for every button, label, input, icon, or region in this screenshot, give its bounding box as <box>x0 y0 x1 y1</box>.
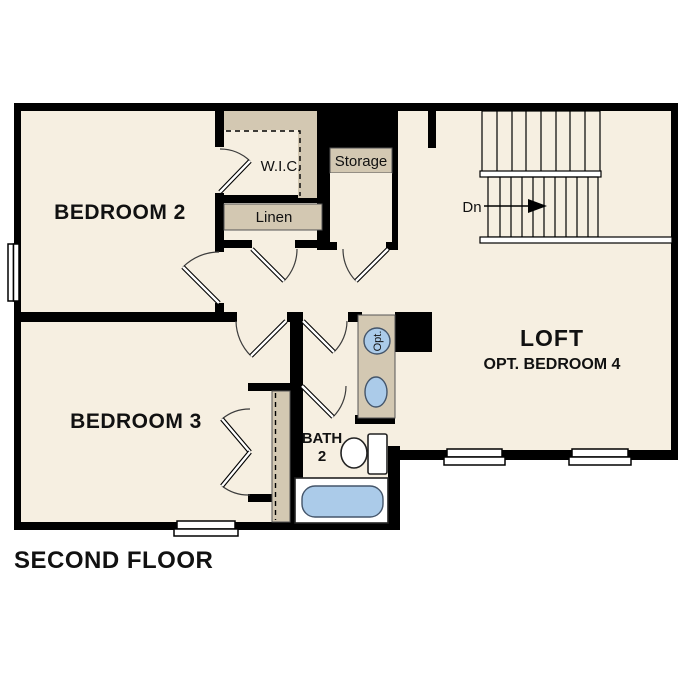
wall-loft-corner-block <box>395 312 432 352</box>
wall-hall-top-stub1 <box>218 240 252 248</box>
stairs-down-label: Dn <box>462 199 481 216</box>
storage-floor <box>330 173 392 242</box>
optional-sink-label: Opt. <box>372 331 384 352</box>
floor-loft-wing <box>398 103 678 460</box>
bathtub <box>302 486 383 517</box>
bedroom3-label: BEDROOM 3 <box>70 410 202 433</box>
loft-window1-inner <box>447 449 502 457</box>
floor-title: SECOND FLOOR <box>14 547 213 574</box>
stair-landing-rail <box>480 171 601 177</box>
stair-bottom-rail <box>480 237 672 243</box>
wall-bath-right <box>388 446 400 530</box>
bedroom2-label: BEDROOM 2 <box>54 201 186 224</box>
floorplan-page: BEDROOM 2 BEDROOM 3 LOFT OPT. BEDROOM 4 … <box>0 0 687 687</box>
loft-option-label: OPT. BEDROOM 4 <box>484 356 621 373</box>
wall-right <box>671 103 678 460</box>
bedroom2-window-inner <box>14 244 20 301</box>
wall-closet-top <box>248 383 303 391</box>
loft-window2-inner <box>572 449 628 457</box>
bedroom2-window-outer <box>8 244 14 301</box>
storage-door-opening <box>337 242 386 250</box>
second-floor-plan: BEDROOM 2 BEDROOM 3 LOFT OPT. BEDROOM 4 … <box>0 0 687 687</box>
bedroom3-window-inner <box>177 521 235 529</box>
toilet-tank <box>368 434 387 474</box>
wall-bedroom2-right-upper <box>215 110 224 147</box>
bath-label-line2: 2 <box>318 448 326 465</box>
storage-label: Storage <box>335 153 388 170</box>
linen-label: Linen <box>256 209 293 226</box>
vanity-sink <box>365 377 387 407</box>
toilet-bowl <box>341 438 367 468</box>
wall-loft-bottom <box>398 450 678 460</box>
loft-window2-outer <box>569 457 631 465</box>
bath-label-line1: BATH <box>302 430 343 447</box>
loft-label: LOFT <box>520 325 584 351</box>
wic-label: W.I.C. <box>261 158 302 175</box>
loft-window1-outer <box>444 457 505 465</box>
wall-bedroom-divider <box>14 312 237 322</box>
wall-stair-stub <box>428 110 436 148</box>
wic-shelf-right <box>298 111 317 198</box>
bedroom3-closet-shelf <box>272 391 290 522</box>
wall-closet-bottom-post <box>248 494 272 502</box>
bedroom3-window-outer <box>174 529 238 536</box>
